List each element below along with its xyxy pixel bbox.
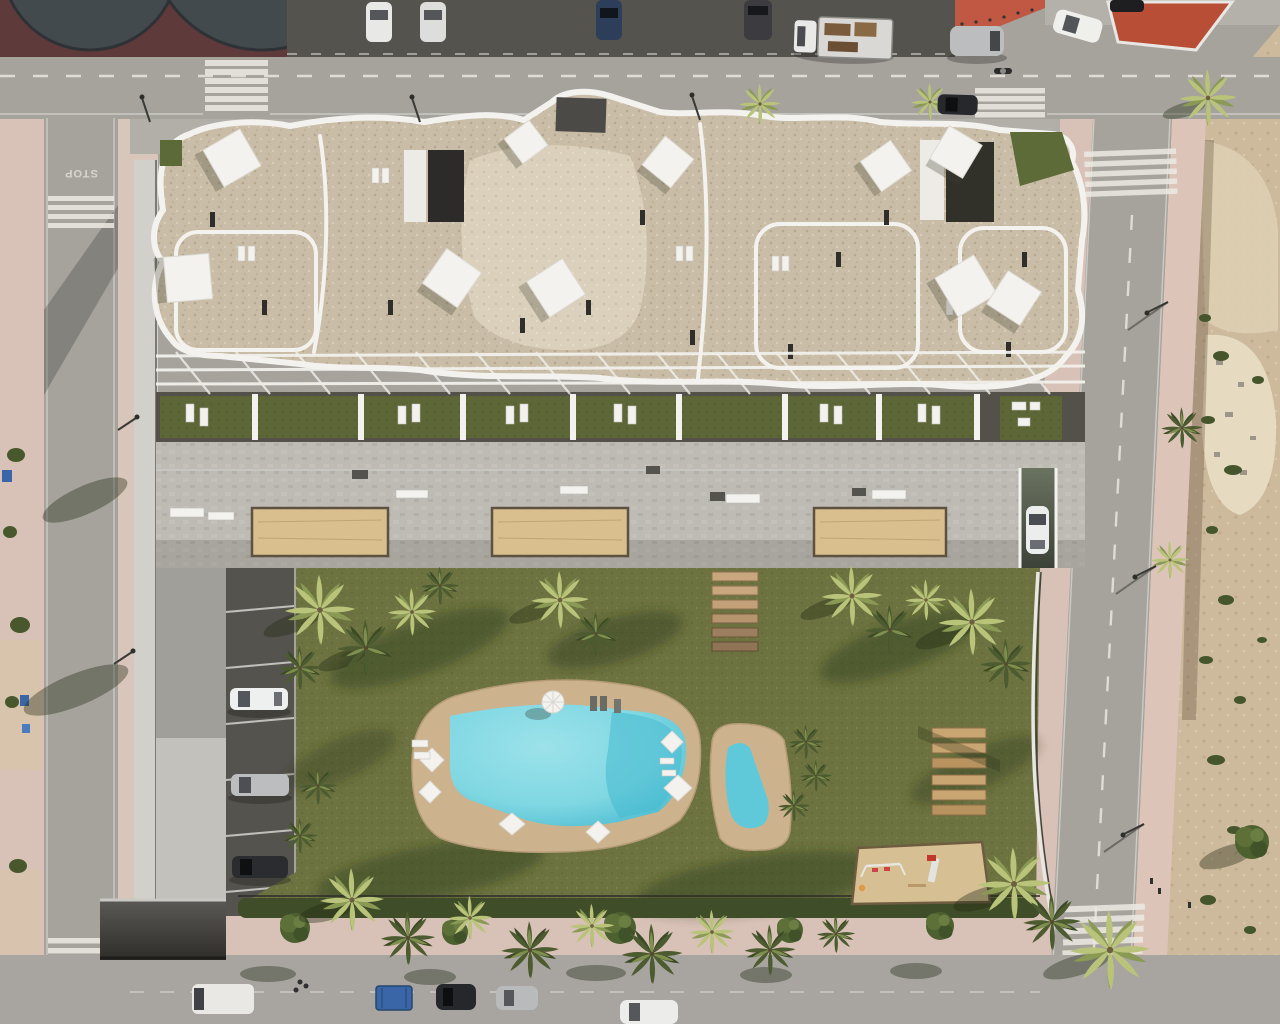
stop-road-marking: STOP xyxy=(64,167,98,179)
parked-car xyxy=(496,986,538,1010)
parked-car xyxy=(596,0,622,40)
sand-planter xyxy=(252,508,388,556)
bench xyxy=(872,490,906,499)
sand-planter xyxy=(492,508,628,556)
parked-car xyxy=(436,984,476,1010)
flatbed-truck xyxy=(793,16,895,65)
parked-car xyxy=(366,2,392,42)
bench xyxy=(208,512,234,520)
car xyxy=(1110,0,1144,12)
roof-dark-block xyxy=(555,97,606,133)
terrace-row xyxy=(156,392,1085,442)
garage-ramp-south xyxy=(100,900,226,960)
balance-beam xyxy=(908,884,926,887)
sand-planter xyxy=(814,508,946,556)
parked-car xyxy=(229,856,291,886)
stair-core-skylight xyxy=(404,150,426,222)
parked-car xyxy=(420,2,446,42)
parked-car xyxy=(227,688,291,718)
bench xyxy=(560,486,588,494)
car-on-ramp xyxy=(1026,506,1049,554)
parasol xyxy=(542,691,564,713)
roof-green-patch xyxy=(160,140,182,166)
bench xyxy=(726,494,760,503)
parked-van xyxy=(744,0,772,40)
swing-seat xyxy=(884,867,890,871)
car xyxy=(937,94,978,115)
bench xyxy=(396,490,428,498)
spring-rider xyxy=(859,885,865,891)
recycle-bin xyxy=(2,470,12,482)
scene: STOP STOP xyxy=(0,0,1280,1024)
dumpster xyxy=(376,986,412,1010)
tree xyxy=(1235,825,1269,859)
terrace-gardens xyxy=(160,396,1062,440)
parked-car xyxy=(228,774,292,804)
podium-deck xyxy=(156,440,1085,568)
bench xyxy=(170,508,204,517)
stair-core xyxy=(428,150,464,222)
roof-gravel-patch xyxy=(461,145,646,350)
street-tree xyxy=(604,912,636,944)
street-tree xyxy=(926,912,954,940)
recycle-bin xyxy=(22,724,30,733)
aerial-render: STOP STOP xyxy=(0,0,1280,1024)
van xyxy=(947,26,1007,64)
swing-seat xyxy=(872,868,878,872)
parked-car xyxy=(620,1000,678,1024)
parked-van xyxy=(192,984,254,1014)
motorcycle xyxy=(994,68,1012,74)
